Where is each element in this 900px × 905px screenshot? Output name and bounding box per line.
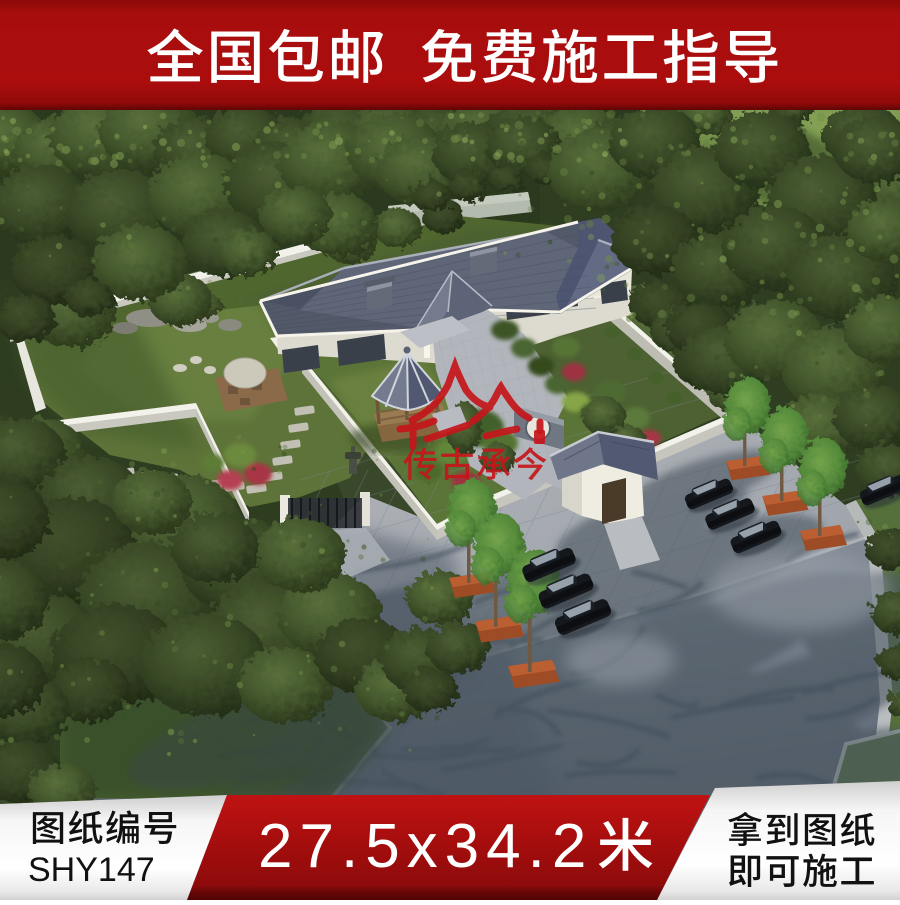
svg-text:SHY147: SHY147 bbox=[28, 851, 155, 889]
svg-text:27.5x34.2: 27.5x34.2 bbox=[258, 812, 593, 881]
